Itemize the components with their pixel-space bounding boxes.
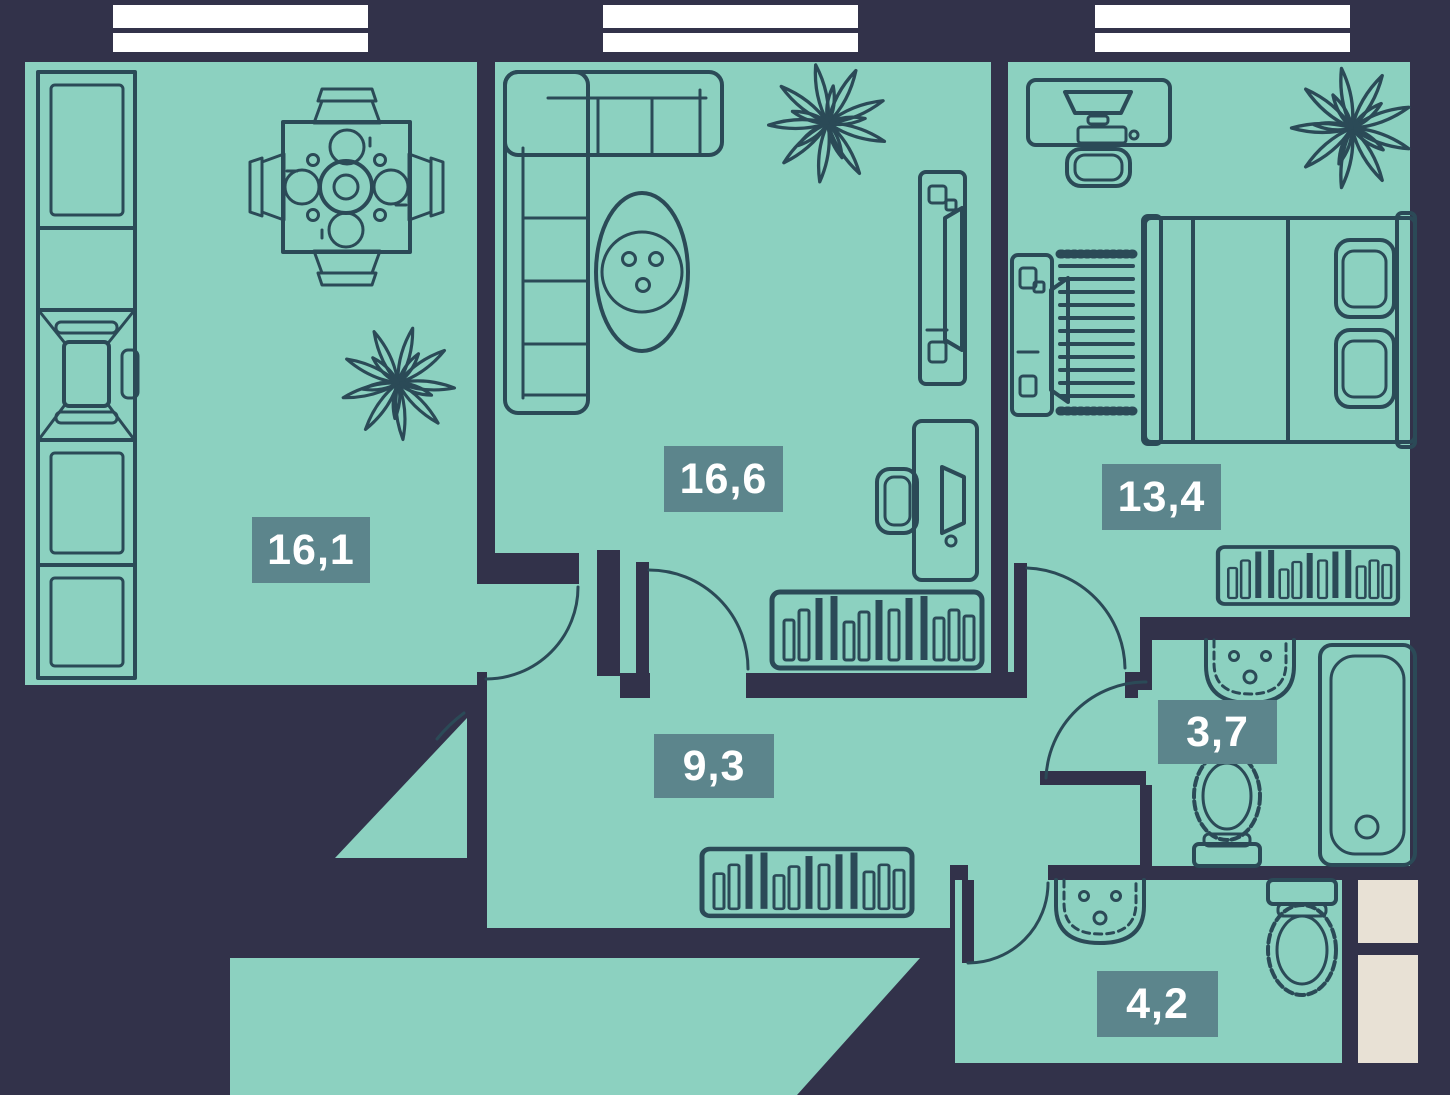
- kitchen-door-leaf: [486, 553, 579, 584]
- bedroom-door-leaf: [1014, 563, 1027, 675]
- room-label-living-room: 16,6: [664, 446, 783, 512]
- room-label-kitchen-dining: 16,1: [252, 517, 370, 583]
- bathroom-door-opening: [1138, 690, 1156, 785]
- room-label-bedroom: 13,4: [1102, 464, 1221, 530]
- bathroom-door-leaf: [1040, 771, 1146, 785]
- floor-plan: 16,1 16,6 13,4 9,3 3,7 4,2: [0, 0, 1450, 1095]
- toilet-door-leaf: [962, 880, 974, 963]
- kitchen-door-opening: [474, 584, 498, 672]
- shaft: [1358, 955, 1418, 1063]
- stair-lobby-floor: [230, 958, 920, 1095]
- window-bedroom: [1095, 5, 1350, 52]
- window-kitchen: [113, 5, 368, 52]
- room-label-bathroom: 3,7: [1158, 700, 1277, 764]
- bedroom-door-opening: [1027, 670, 1125, 700]
- toilet-door-opening: [968, 862, 1048, 882]
- shaft: [1358, 880, 1418, 943]
- room-label-hallway: 9,3: [654, 734, 774, 798]
- window-living: [603, 5, 858, 52]
- living-door-opening: [650, 671, 746, 701]
- floor-plan-drawing: [0, 0, 1450, 1095]
- room-label-toilet-room: 4,2: [1097, 971, 1218, 1037]
- entrance-door: [335, 713, 467, 858]
- wall-stub: [597, 550, 620, 676]
- living-door-leaf: [636, 562, 649, 676]
